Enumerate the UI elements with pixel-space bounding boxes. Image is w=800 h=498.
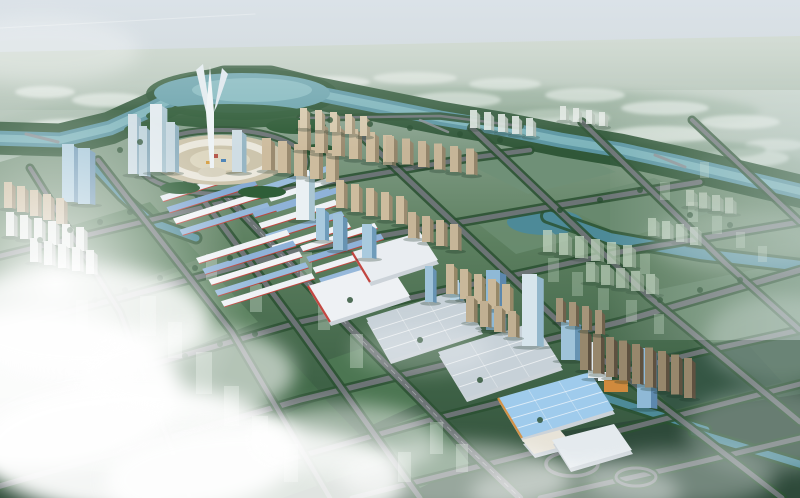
render-canvas xyxy=(0,0,800,498)
aerial-cityscape-render xyxy=(0,0,800,498)
